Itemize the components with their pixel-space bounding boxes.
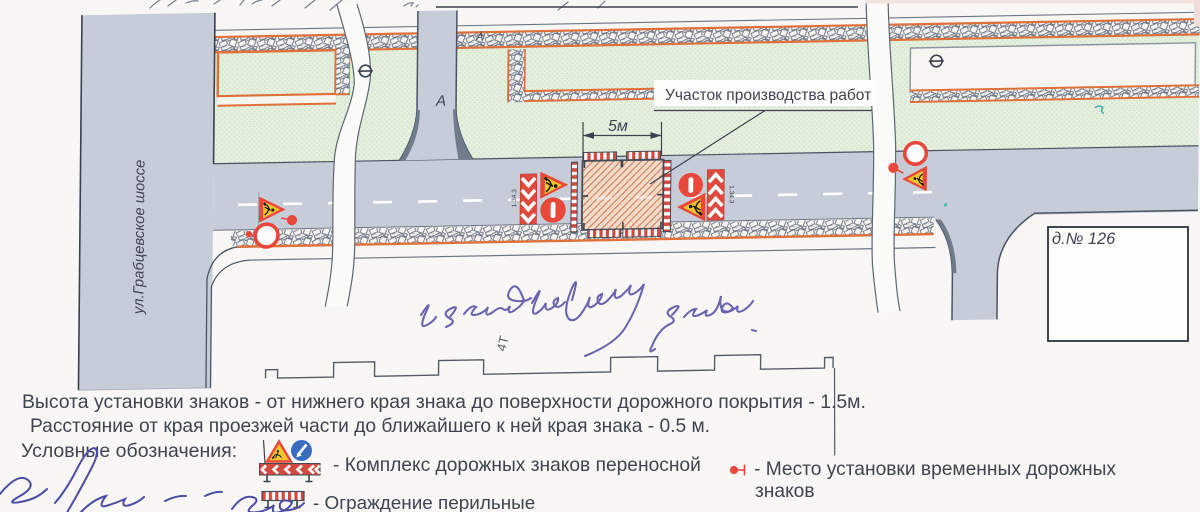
svg-text:А: А [435,93,446,110]
svg-text:- Место установки временных до: - Место установки временных дорожных [754,459,1116,480]
svg-text:1.34.3: 1.34.3 [511,189,518,208]
svg-text:Условные обозначения:: Условные обозначения: [21,440,237,462]
svg-text:5м: 5м [608,118,628,135]
svg-text:1.34.3: 1.34.3 [728,185,735,204]
svg-text:Высота установки знаков - от: Высота установки знаков - от нижнего кра… [22,391,866,413]
svg-text:д.№ 126: д.№ 126 [1052,230,1116,248]
svg-text:Участок производства работ: Участок производства работ [665,87,871,104]
svg-text:Расстояние от края проезжей ча: Расстояние от края проезжей части до бли… [30,416,710,437]
svg-text:А̄: А̄ [476,30,484,43]
svg-text:знаков: знаков [755,481,815,502]
svg-text:- Ограждение перильные: - Ограждение перильные [313,493,535,512]
svg-text:ул.Грабцевское шоссе: ул.Грабцевское шоссе [131,160,148,316]
svg-text:- Комплекс дорожных знаков пер: - Комплекс дорожных знаков переносной [333,455,701,476]
